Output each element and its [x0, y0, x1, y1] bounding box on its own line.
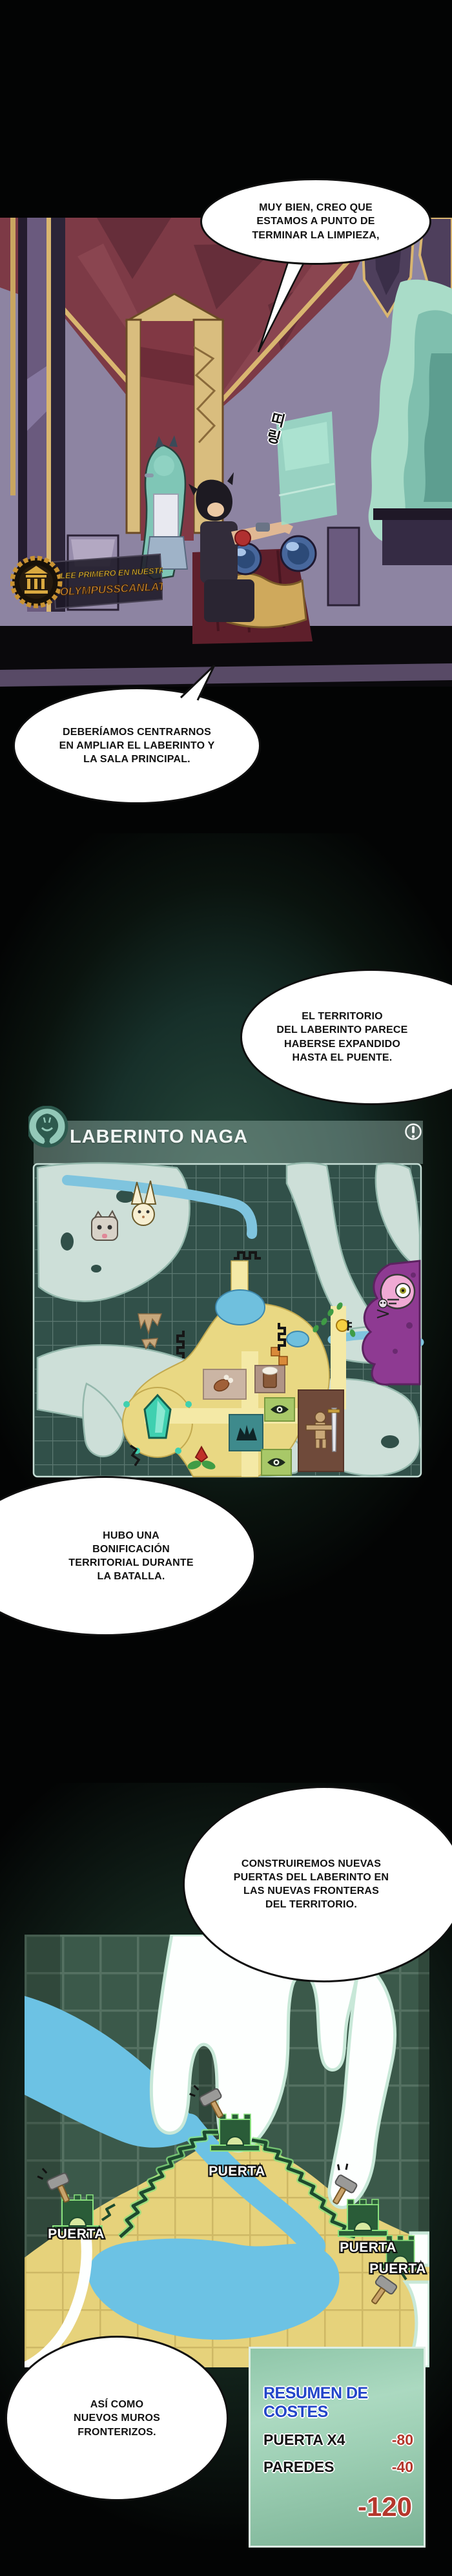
cost-row-paredes: PAREDES -40 [263, 2458, 413, 2476]
speech-bubble-1-text: MUY BIEN, CREO QUE ESTAMOS A PUNTO DE TE… [235, 201, 396, 242]
speech-bubble-6: ASÍ COMO NUEVOS MUROS FRONTERIZOS. [5, 2336, 229, 2501]
webtoon-page: 띠링 LEE PRIMERO EN NUESTRA WEB OLYMPUSSCA… [0, 0, 452, 2576]
throne-room-art [0, 218, 452, 687]
cost-row-paredes-label: PAREDES [263, 2458, 334, 2476]
gate-label-4: PUERTA [369, 2261, 426, 2276]
speech-bubble-5-text: CONSTRUIREMOS NUEVAS PUERTAS DEL LABERIN… [217, 1857, 406, 1911]
alert-info-icon [406, 1125, 421, 1139]
cost-panel-title: RESUMEN DE COSTES [263, 2384, 413, 2422]
scanlation-watermark: LEE PRIMERO EN NUESTRA WEB OLYMPUSSCANLA… [10, 549, 163, 615]
naga-snake-icon [28, 1107, 67, 1146]
map-frontier-gates: PUERTA PUERTA PUERTA PUERTA [25, 1935, 429, 2367]
cost-row-paredes-value: -40 [392, 2458, 413, 2476]
barrel-icon [262, 1367, 278, 1387]
olympus-temple-logo-icon [12, 558, 60, 606]
throne-room-panel: 띠링 [0, 218, 452, 687]
pedestal [373, 508, 452, 565]
speech-bubble-2: DEBERÍAMOS CENTRARNOS EN AMPLIAR EL LABE… [13, 687, 261, 804]
cost-row-puertas-value: -80 [392, 2431, 413, 2449]
bubble2-tail [169, 663, 227, 701]
speech-bubble-4-text: HUBO UNA BONIFICACIÓN TERRITORIAL DURANT… [52, 1529, 210, 1583]
gate-label-2: PUERTA [340, 2240, 396, 2255]
speech-bubble-5: CONSTRUIREMOS NUEVAS PUERTAS DEL LABERIN… [183, 1786, 452, 1982]
speech-bubble-1: MUY BIEN, CREO QUE ESTAMOS A PUNTO DE TE… [200, 178, 431, 265]
cost-row-puertas: PUERTA X4 -80 [263, 2431, 413, 2449]
cost-row-puertas-label: PUERTA X4 [263, 2431, 345, 2449]
cost-summary-panel: RESUMEN DE COSTES PUERTA X4 -80 PAREDES … [249, 2347, 426, 2548]
map-laberinto-naga [28, 1106, 425, 1478]
speech-bubble-3: EL TERRITORIO DEL LABERINTO PARECE HABER… [240, 969, 452, 1105]
cost-total-value: -120 [263, 2491, 413, 2522]
speech-bubble-2-text: DEBERÍAMOS CENTRARNOS EN AMPLIAR EL LABE… [43, 725, 232, 766]
gate-label-1: PUERTA [209, 2164, 265, 2179]
speech-bubble-3-text: EL TERRITORIO DEL LABERINTO PARECE HABER… [260, 1010, 424, 1064]
gate-label-3: PUERTA [48, 2227, 105, 2241]
map1-title: LABERINTO NAGA [70, 1127, 276, 1148]
speech-bubble-6-text: ASÍ COMO NUEVOS MUROS FRONTERIZOS. [57, 2398, 177, 2438]
speech-bubble-4: HUBO UNA BONIFICACIÓN TERRITORIAL DURANT… [0, 1476, 256, 1636]
